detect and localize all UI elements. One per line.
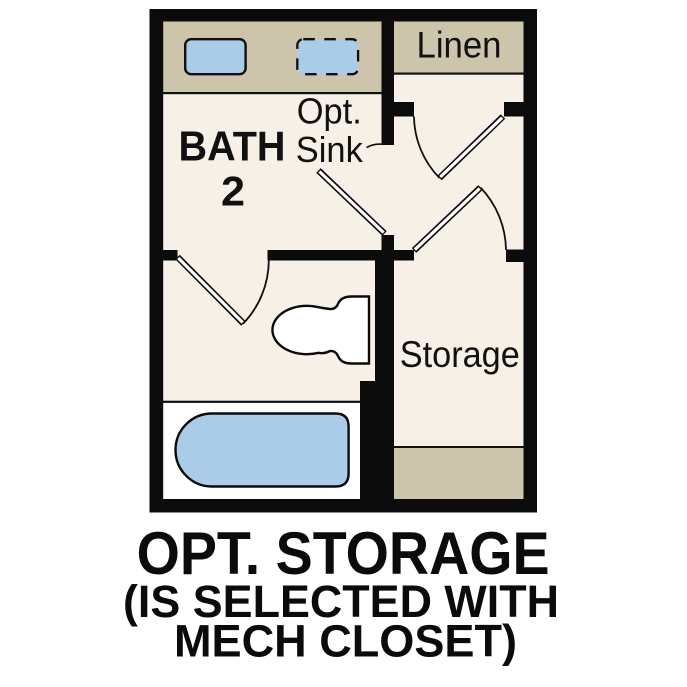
svg-text:Opt.: Opt. (297, 91, 362, 132)
svg-text:MECH CLOSET): MECH CLOSET) (174, 616, 517, 667)
svg-text:Storage: Storage (400, 334, 520, 375)
svg-text:Sink: Sink (296, 129, 364, 170)
svg-text:Linen: Linen (417, 25, 502, 66)
svg-text:2: 2 (221, 169, 245, 215)
svg-text:BATH: BATH (179, 124, 286, 170)
